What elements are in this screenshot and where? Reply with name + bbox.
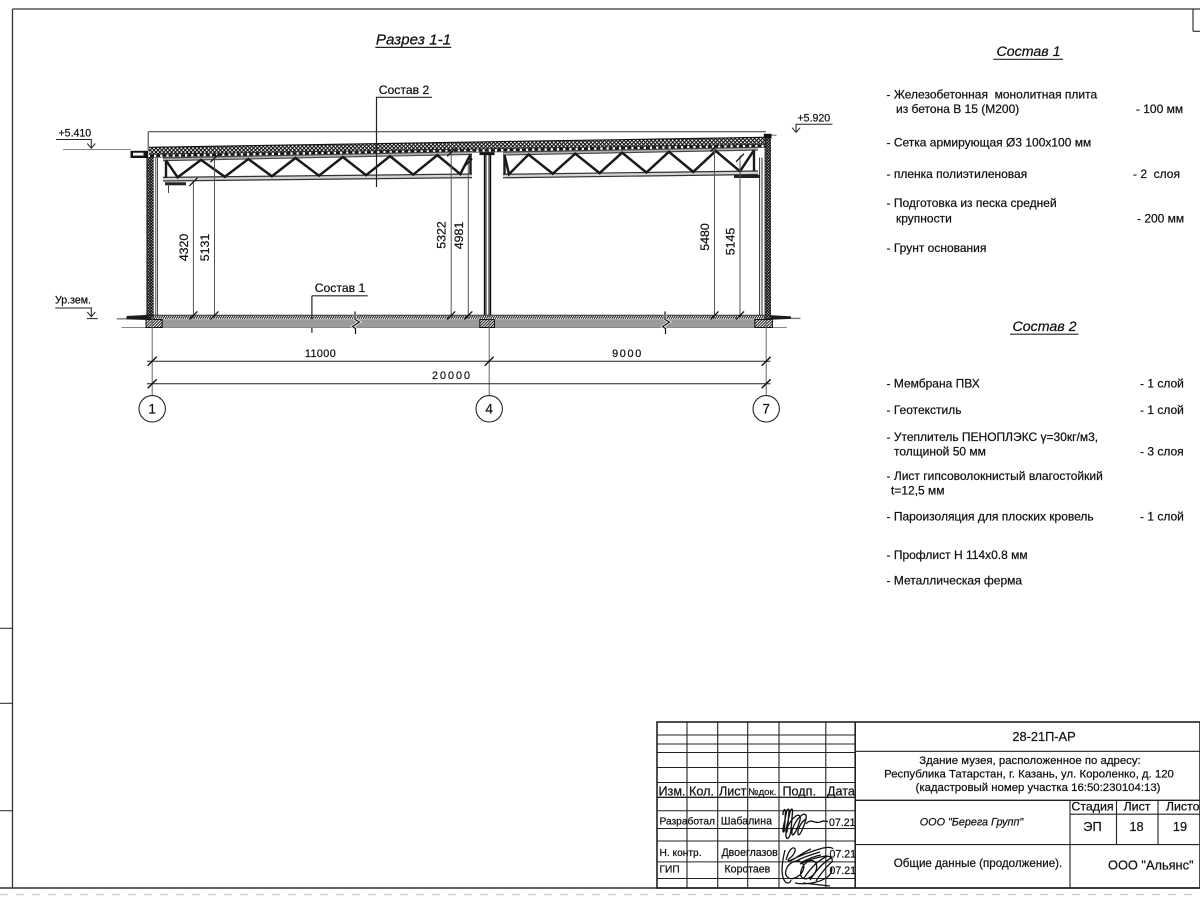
svg-text:- 1 слой: - 1 слой <box>1140 509 1184 523</box>
svg-text:- пленка полиэтиленовая: - пленка полиэтиленовая <box>887 167 1028 181</box>
svg-text:- Лист гипсоволокнистый влагос: - Лист гипсоволокнистый влагостойкий <box>887 469 1103 483</box>
svg-text:5480: 5480 <box>698 223 712 251</box>
svg-text:19: 19 <box>1173 819 1187 834</box>
svg-text:- 2 слоя: - 2 слоя <box>1133 167 1180 181</box>
svg-text:ГИП: ГИП <box>660 864 680 875</box>
svg-text:Состав 1: Состав 1 <box>315 281 366 295</box>
svg-text:- 100 мм: - 100 мм <box>1136 102 1183 116</box>
svg-text:Состав 2: Состав 2 <box>379 83 430 97</box>
svg-text:5322: 5322 <box>435 221 449 249</box>
svg-text:- Подготовка из песка средней: - Подготовка из песка средней <box>887 196 1057 210</box>
svg-text:Листов: Листов <box>1166 800 1200 814</box>
svg-text:11000: 11000 <box>305 348 336 360</box>
svg-text:Состав 1: Состав 1 <box>996 44 1060 60</box>
svg-text:Разрез 1-1: Разрез 1-1 <box>376 32 451 49</box>
svg-text:Разработал: Разработал <box>660 816 716 828</box>
svg-text:- Профлист Н 114х0.8 мм: - Профлист Н 114х0.8 мм <box>887 548 1028 562</box>
svg-text:из бетона В 15 (М200): из бетона В 15 (М200) <box>896 102 1019 116</box>
svg-text:1: 1 <box>148 402 156 417</box>
svg-text:- 1 слой: - 1 слой <box>1140 403 1184 417</box>
svg-text:28-21П-АР: 28-21П-АР <box>1012 729 1075 744</box>
svg-text:Республика Татарстан, г. Казан: Республика Татарстан, г. Казань, ул. Кор… <box>884 769 1174 781</box>
svg-text:- 200 мм: - 200 мм <box>1137 212 1184 226</box>
svg-text:Коротаев: Коротаев <box>725 863 771 875</box>
svg-text:+5.920: +5.920 <box>798 112 831 124</box>
svg-text:- Грунт основания: - Грунт основания <box>887 241 987 255</box>
svg-text:Ур.зем.: Ур.зем. <box>55 295 91 307</box>
svg-text:№док.: №док. <box>748 787 776 798</box>
svg-text:Шабалина: Шабалина <box>721 816 772 828</box>
svg-text:крупности: крупности <box>896 212 952 226</box>
svg-text:07.21: 07.21 <box>830 865 857 877</box>
svg-text:4320: 4320 <box>177 234 191 262</box>
svg-text:Здание музея, расположенное по: Здание музея, расположенное по адресу: <box>919 755 1140 767</box>
svg-text:Лист: Лист <box>1124 800 1151 814</box>
svg-text:- Утеплитель ПЕНОПЛЭКС γ=30кг/: - Утеплитель ПЕНОПЛЭКС γ=30кг/м3, <box>887 430 1099 444</box>
svg-text:+5.410: +5.410 <box>59 128 92 140</box>
svg-text:Изм.: Изм. <box>659 784 686 798</box>
svg-text:07.21: 07.21 <box>829 817 856 829</box>
svg-text:4: 4 <box>485 402 493 417</box>
svg-text:- 1 слой: - 1 слой <box>1140 377 1184 391</box>
svg-text:- Железобетонная монолитная п: - Железобетонная монолитная плита <box>887 87 1098 101</box>
svg-text:толщиной 50 мм: толщиной 50 мм <box>894 445 986 459</box>
svg-text:t=12,5 мм: t=12,5 мм <box>891 483 945 497</box>
svg-text:Н. контр.: Н. контр. <box>660 848 702 859</box>
svg-text:(кадастровый номер участка 16:: (кадастровый номер участка 16:50:230104:… <box>916 782 1161 794</box>
svg-text:- 3 слоя: - 3 слоя <box>1140 445 1184 459</box>
svg-text:- Металлическая ферма: - Металлическая ферма <box>887 573 1023 587</box>
svg-text:18: 18 <box>1129 819 1143 834</box>
svg-text:Состав 2: Состав 2 <box>1012 319 1076 335</box>
svg-text:4981: 4981 <box>452 222 466 250</box>
svg-text:- Мембрана ПВХ: - Мембрана ПВХ <box>887 377 980 391</box>
svg-text:5131: 5131 <box>198 234 212 262</box>
svg-text:Общие данные (продолжение).: Общие данные (продолжение). <box>894 857 1062 870</box>
svg-text:- Сетка армирующая Ø3 100х100: - Сетка армирующая Ø3 100х100 мм <box>887 136 1092 150</box>
svg-text:Кол.: Кол. <box>689 784 714 798</box>
svg-text:- Пароизоляция для плоских кро: - Пароизоляция для плоских кровель <box>887 509 1094 523</box>
svg-text:ООО "Альянс": ООО "Альянс" <box>1108 858 1194 873</box>
svg-text:Двоеглазов: Двоеглазов <box>722 847 779 859</box>
svg-text:07.21: 07.21 <box>830 849 857 861</box>
svg-text:Подп.: Подп. <box>783 784 816 798</box>
svg-text:ЭП: ЭП <box>1083 819 1101 834</box>
svg-text:20000: 20000 <box>432 370 472 382</box>
svg-text:5145: 5145 <box>724 228 738 256</box>
svg-text:ООО "Берега Групп": ООО "Берега Групп" <box>920 816 1025 828</box>
svg-text:Дата: Дата <box>827 784 855 798</box>
svg-text:7: 7 <box>762 402 770 417</box>
svg-text:9000: 9000 <box>612 348 643 360</box>
svg-text:Лист: Лист <box>719 784 747 798</box>
svg-text:Стадия: Стадия <box>1071 800 1113 814</box>
svg-text:- Геотекстиль: - Геотекстиль <box>887 403 962 417</box>
